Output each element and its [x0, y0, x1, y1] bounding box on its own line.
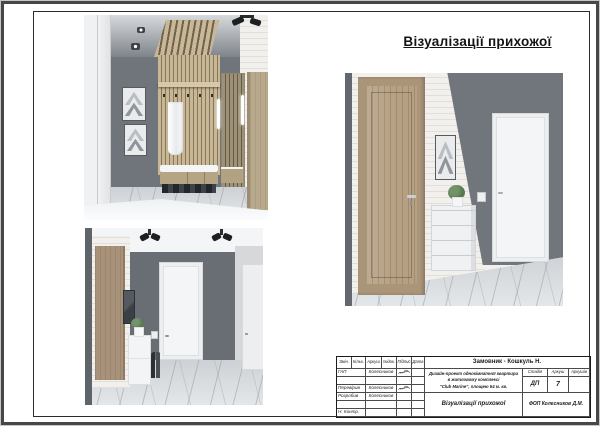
spot-head	[231, 16, 244, 26]
chevron-artwork	[435, 135, 456, 180]
spot-head	[211, 232, 222, 242]
project-line-3: "Club Marine", площею 54 м. кв.	[440, 384, 508, 390]
date-cell	[412, 409, 425, 417]
white-door-right	[242, 264, 263, 370]
project-description: Дизайн-проект однокімнатної квартири в ж…	[425, 369, 523, 393]
name-cell: Колесников	[366, 393, 397, 401]
col-header-sheet: Аркуш	[366, 357, 382, 369]
customer-cell: Замовник - Кошкуль Н.	[425, 357, 590, 369]
role-cell: Н. Контр.	[337, 409, 366, 417]
chevron-artwork	[124, 124, 147, 156]
plant-pot	[452, 197, 463, 207]
door-panel	[496, 117, 545, 258]
door-handle	[407, 195, 416, 198]
col-header-date: Дата	[412, 357, 425, 369]
date-cell	[412, 401, 425, 409]
date-cell	[412, 377, 425, 385]
recessed-spotlight	[131, 43, 140, 50]
role-cell	[337, 377, 366, 385]
role-cell	[337, 401, 366, 409]
door-handle	[245, 333, 248, 335]
led-sconce	[217, 99, 220, 129]
door-handle	[498, 192, 503, 194]
decor-vases	[151, 352, 161, 378]
bench-drawers	[160, 172, 218, 184]
document-title: Візуалізації прихожої	[425, 393, 523, 417]
sheet-number: 7	[548, 377, 569, 393]
signature-cell	[397, 369, 412, 377]
wood-door	[95, 246, 125, 380]
render-hallway-wardrobe	[84, 15, 268, 220]
wood-door	[247, 72, 268, 210]
signature-cell	[397, 385, 412, 393]
col-header-signature: Підпис	[397, 357, 412, 369]
white-door	[159, 262, 203, 360]
foreground-wall-edge	[85, 228, 92, 405]
col-header-qty: Кільк.	[352, 357, 366, 369]
role-cell: Розробив	[337, 393, 366, 401]
signature-cell	[397, 377, 412, 385]
name-cell	[366, 409, 397, 417]
white-door-edge	[84, 15, 111, 220]
door-handle	[165, 335, 169, 337]
white-dresser	[431, 205, 476, 271]
stage-label: Стадія	[523, 369, 548, 377]
spot-head	[139, 232, 150, 242]
led-sconce	[241, 95, 244, 125]
name-cell	[366, 377, 397, 385]
render-hallway-entrance	[345, 73, 563, 306]
sheets-total	[569, 377, 590, 393]
date-cell	[412, 369, 425, 377]
recessed-spotlight	[137, 27, 145, 33]
sheet-label: Аркуш	[548, 369, 569, 377]
door-keyhole	[410, 201, 412, 205]
signature-cell	[397, 401, 412, 409]
col-header-doc: №док.	[382, 357, 397, 369]
name-cell	[366, 401, 397, 409]
door-panel-line	[371, 92, 412, 278]
signature-cell	[397, 393, 412, 401]
chevron-artwork	[122, 87, 146, 121]
role-cell: ГАП	[337, 369, 366, 377]
spot-head	[150, 232, 161, 241]
white-door	[492, 113, 549, 262]
spot-head	[249, 17, 261, 26]
title-block: Змін. Кільк. Аркуш №док. Підпис Дата Зам…	[336, 356, 591, 418]
render-hallway-doors	[85, 228, 263, 405]
drawing-sheet: Візуалізації прихожої	[0, 0, 600, 426]
spot-head	[222, 232, 233, 241]
bench	[160, 165, 218, 195]
name-cell: Колесников	[366, 385, 397, 393]
organization: ФОП Колесников Д.М.	[523, 393, 590, 417]
col-header-change: Змін.	[337, 357, 352, 369]
signature-cell	[397, 409, 412, 417]
mirror-bench	[221, 167, 243, 183]
white-pedestal	[128, 335, 151, 385]
foreground-wall-edge	[345, 73, 352, 306]
sheets-label: Аркушів	[569, 369, 590, 377]
stage-value: ДП	[523, 377, 548, 393]
wardrobe-shelf	[158, 82, 220, 87]
date-cell	[412, 385, 425, 393]
plant-pot	[134, 327, 144, 337]
door-panel	[163, 266, 199, 356]
name-cell: Колесников	[366, 369, 397, 377]
shoe-shelf	[162, 184, 216, 193]
page-title: Візуалізації прихожої	[360, 34, 595, 49]
light-switch	[151, 331, 158, 339]
track-spotlight	[139, 229, 161, 245]
signature-icon	[398, 385, 411, 392]
coat-hooks	[163, 94, 215, 97]
bench-cushion	[160, 165, 218, 172]
wood-door	[366, 86, 417, 284]
date-cell	[412, 393, 425, 401]
role-cell: Перевірив	[337, 385, 366, 393]
signature-icon	[398, 369, 411, 376]
light-switch	[477, 192, 486, 202]
track-spotlight	[211, 229, 233, 245]
hanging-towel	[168, 102, 183, 155]
track-spotlight	[230, 15, 266, 31]
